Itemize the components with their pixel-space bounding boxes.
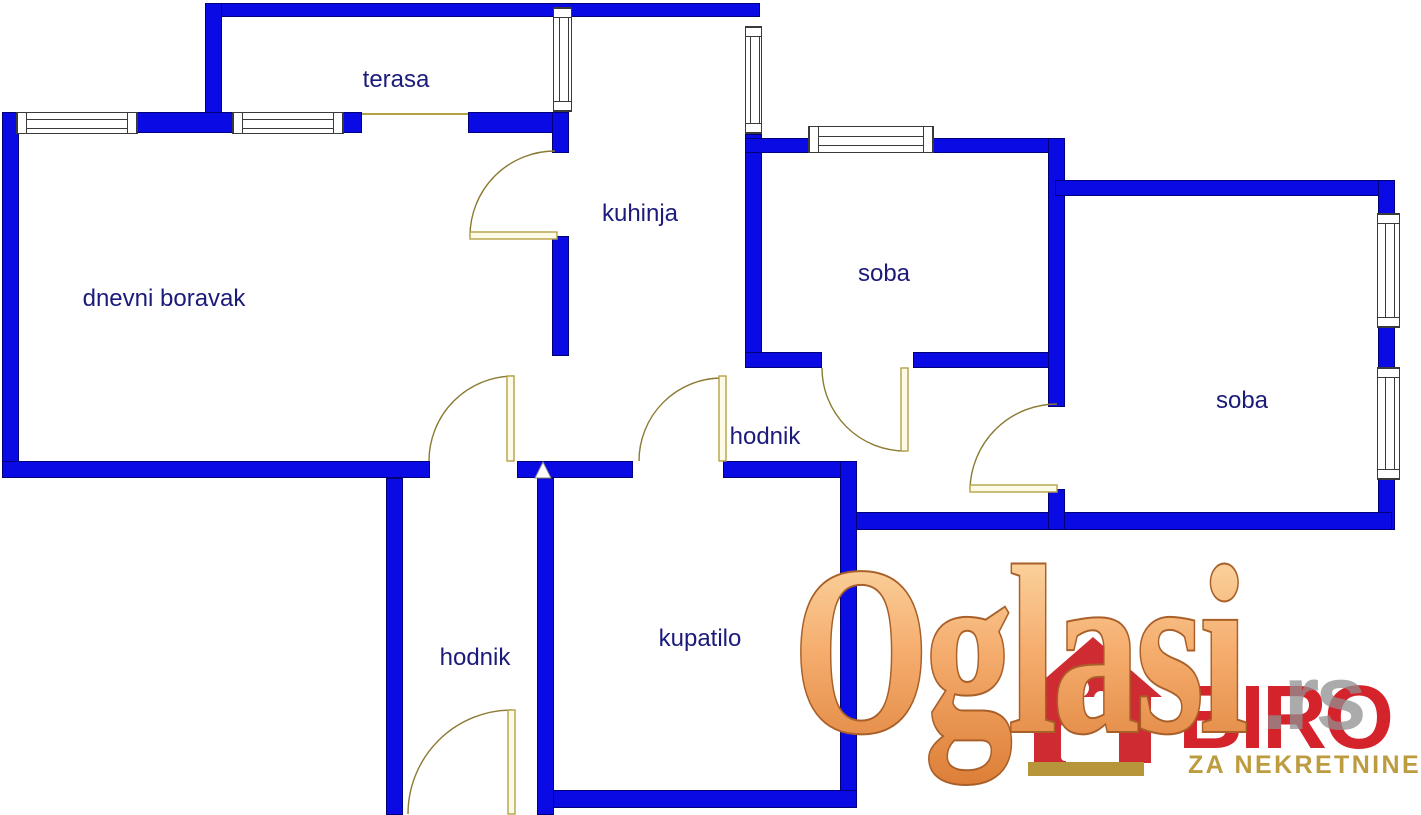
wall-terrace-left: [205, 3, 222, 130]
window-living-1: [16, 112, 138, 134]
wall-hall-mid: [517, 461, 633, 478]
room-label-hodnik-middle: hodnik: [730, 423, 801, 451]
window-room2-lower: [1377, 367, 1400, 480]
house-icon-roof: [1024, 637, 1162, 697]
agency-name: BIRO: [1178, 668, 1391, 768]
door-arc-room1: [822, 368, 905, 451]
room-label-soba-1: soba: [858, 260, 910, 288]
wall-terrace-top: [205, 3, 760, 17]
window-cap: [745, 27, 762, 37]
brand-watermark: Oglasi: [793, 519, 1246, 784]
room-label-hodnik-bottom: hodnik: [440, 644, 511, 672]
window-pane: [1385, 223, 1395, 318]
agency-logo: BIRO ZA NEKRETNINE: [1024, 637, 1421, 779]
wall-kitchen-right: [745, 134, 762, 368]
door-arc-living: [429, 376, 514, 461]
window-room2-upper: [1377, 213, 1400, 328]
window-cap: [809, 126, 819, 153]
window-cap: [553, 8, 572, 18]
window-living-2: [232, 112, 344, 134]
door-leaf-room1: [901, 368, 908, 451]
window-cap: [1377, 469, 1400, 479]
door-leaf-kitchen: [470, 232, 557, 239]
window-cap: [923, 126, 933, 153]
window-cap: [1377, 214, 1400, 224]
door-leaf-bathroom: [719, 376, 726, 461]
door-arc-kitchen: [470, 151, 555, 236]
room-label-dnevni-boravak: dnevni boravak: [83, 285, 246, 313]
window-terrace-divider: [553, 7, 572, 112]
floor-plan: terasa kuhinja dnevni boravak soba soba …: [0, 0, 1421, 815]
wall-living-bottom: [2, 461, 430, 478]
window-pane: [818, 136, 924, 146]
window-cap: [17, 112, 27, 134]
house-icon-pillar-right: [1119, 695, 1151, 763]
brand-suffix: .rs: [1262, 647, 1363, 749]
house-icon-pillar-left: [1034, 695, 1066, 763]
window-pane: [1385, 377, 1395, 470]
wall-room2-right-mid: [1378, 326, 1395, 368]
agency-tagline: ZA NEKRETNINE: [1188, 751, 1421, 779]
wall-bath-right: [840, 461, 857, 808]
wall-room1-bottom-left: [745, 352, 822, 368]
window-cap: [553, 101, 572, 111]
window-cap: [233, 112, 243, 134]
wall-room2-top: [1055, 180, 1395, 196]
wall-bath-bottom: [537, 790, 857, 808]
window-cap: [1377, 317, 1400, 327]
wall-bottom-long: [840, 512, 1392, 530]
wall-living-left: [2, 112, 19, 478]
room-label-kuhinja: kuhinja: [602, 200, 678, 228]
wall-room2-door-stub: [1048, 489, 1065, 530]
door-arc-room2: [970, 404, 1057, 489]
wall-hall-bottom-left: [386, 478, 403, 815]
window-cap: [745, 123, 762, 133]
window-pane: [559, 17, 569, 102]
door-leaf-entrance: [508, 710, 515, 814]
window-kitchen-right: [745, 26, 762, 134]
window-cap: [127, 112, 137, 134]
window-room1-top: [808, 126, 934, 153]
door-arc-entrance: [408, 710, 512, 814]
room-label-kupatilo: kupatilo: [659, 625, 742, 653]
wall-kitchen-left-upper: [552, 112, 569, 153]
family-silhouette-icon: [1061, 679, 1118, 761]
door-leaf-room2: [970, 485, 1057, 492]
wall-bath-top: [723, 461, 857, 478]
room-label-soba-2: soba: [1216, 387, 1268, 415]
wall-room2-right-upper: [1378, 180, 1395, 215]
wall-kitchen-left-lower: [552, 236, 569, 356]
window-pane: [26, 119, 128, 129]
window-pane: [242, 119, 334, 129]
door-arc-bathroom: [639, 378, 722, 461]
wall-room1-bottom-right: [913, 352, 1065, 368]
room-label-terasa: terasa: [363, 66, 430, 94]
window-cap: [333, 112, 343, 134]
wall-room1-right: [1048, 138, 1065, 407]
wall-bath-left: [537, 478, 554, 815]
window-pane: [750, 36, 760, 124]
door-leaf-living: [507, 376, 514, 461]
window-cap: [1377, 368, 1400, 378]
house-icon-base: [1028, 762, 1144, 776]
